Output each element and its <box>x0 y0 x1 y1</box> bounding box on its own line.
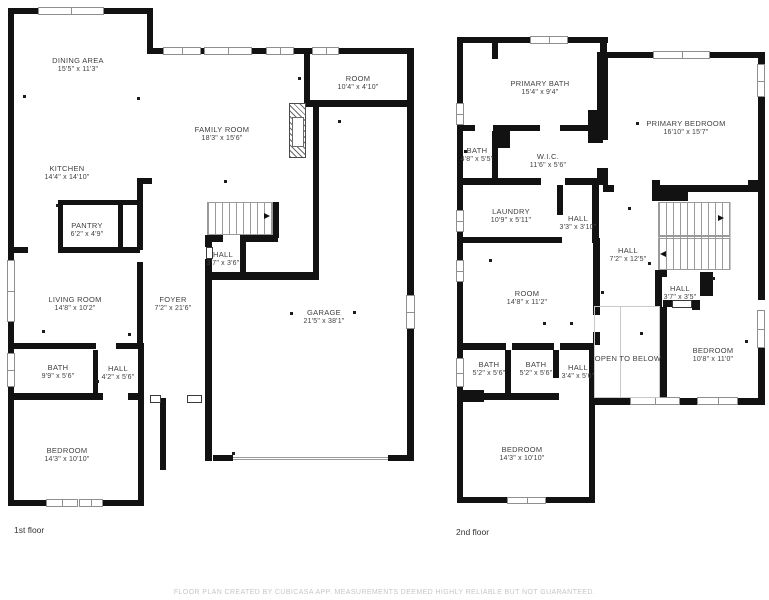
room-dims: 3'7" x 3'6" <box>207 259 240 268</box>
reference-dot <box>290 312 293 315</box>
window <box>38 7 104 15</box>
room-dims: 4'2" x 5'6" <box>102 373 135 382</box>
wall-segment <box>138 395 144 505</box>
room-name: PANTRY <box>71 221 104 230</box>
window-mullion <box>655 398 656 404</box>
room-name: PRIMARY BEDROOM <box>646 119 725 128</box>
wall-segment <box>313 103 319 275</box>
wall-segment <box>483 393 559 400</box>
wall-segment <box>505 350 511 394</box>
room-dims: 5'2" x 5'6" <box>473 369 506 378</box>
wall-segment <box>160 398 166 470</box>
window-mullion <box>228 48 229 54</box>
reference-dot <box>298 77 301 80</box>
room-name: FAMILY ROOM <box>195 125 250 134</box>
window <box>312 47 339 55</box>
room-label-bath3-2f: BATH 5'2" x 5'6" <box>473 360 506 378</box>
room-label-hall4-2f: HALL 3'4" x 5'6" <box>562 363 595 381</box>
room-name: HALL <box>610 246 647 255</box>
room-name: BEDROOM <box>44 446 89 455</box>
room-name: HALL <box>664 284 697 293</box>
window-mullion <box>718 398 719 404</box>
window-mullion <box>407 312 414 313</box>
window <box>530 36 568 44</box>
reference-dot <box>96 380 99 383</box>
wall-segment <box>758 190 765 300</box>
room-label-living-room: LIVING ROOM 14'8" x 10'2" <box>48 295 101 313</box>
reference-dot <box>224 180 227 183</box>
room-label-laundry: LAUNDRY 10'9" x 5'11" <box>491 207 531 225</box>
wall-segment <box>457 497 509 503</box>
wall-segment <box>58 200 142 205</box>
room-label-foyer: FOYER 7'2" x 21'6" <box>155 295 192 313</box>
wall-segment <box>492 131 510 148</box>
window <box>406 295 415 329</box>
room-dims: 4'8" x 5'5" <box>461 155 494 164</box>
floor-label-first: 1st floor <box>14 525 44 535</box>
room-dims: 6'2" x 4'9" <box>71 230 104 239</box>
window-mullion <box>8 370 14 371</box>
room-label-bath4-2f: BATH 5'2" x 5'6" <box>520 360 553 378</box>
room-name: ROOM <box>507 289 547 298</box>
room-name: LIVING ROOM <box>48 295 101 304</box>
wall-segment <box>680 398 697 405</box>
wall-segment <box>588 110 603 143</box>
room-name: DINING AREA <box>52 56 104 65</box>
window <box>757 310 765 348</box>
room-name: BATH <box>461 146 494 155</box>
window-mullion <box>280 48 281 54</box>
room-label-hall-small-2f: HALL 3'3" x 3'10" <box>560 214 597 232</box>
room-label-room-2f: ROOM 14'8" x 11'2" <box>507 289 547 307</box>
open-to-below-railing <box>620 306 622 398</box>
room-name: BEDROOM <box>499 445 544 454</box>
wall-segment <box>512 343 554 350</box>
room-label-bath-2f: BATH 4'8" x 5'5" <box>461 146 494 164</box>
window <box>456 103 464 125</box>
wall-segment <box>58 200 63 252</box>
room-dims: 14'8" x 11'2" <box>507 298 547 307</box>
window-mullion <box>682 52 683 58</box>
window <box>456 358 464 387</box>
room-name: ROOM <box>338 74 379 83</box>
wall-segment <box>205 272 319 280</box>
wall-segment <box>560 343 594 350</box>
reference-dot <box>648 262 651 265</box>
wall-segment <box>138 343 144 395</box>
room-label-dining-area: DINING AREA 15'5" x 11'3" <box>52 56 104 74</box>
reference-dot <box>489 259 492 262</box>
window-mullion <box>457 221 463 222</box>
wall-segment <box>240 235 278 242</box>
wall-segment <box>407 48 414 295</box>
wall-segment <box>93 350 98 395</box>
room-dims: 10'4" x 4'10" <box>338 83 379 92</box>
room-name: HALL <box>562 363 595 372</box>
window-mullion <box>457 373 463 374</box>
wall-segment <box>388 455 414 461</box>
room-label-hall-1f: HALL 3'7" x 3'6" <box>207 250 240 268</box>
window <box>266 47 294 55</box>
wall-segment <box>652 190 688 201</box>
room-dims: 9'9" x 5'6" <box>42 372 75 381</box>
wall-segment <box>457 125 463 210</box>
wall-segment <box>58 247 140 253</box>
wall-segment <box>553 350 559 378</box>
fireplace-firebox <box>292 117 304 147</box>
room-name: PRIMARY BATH <box>510 79 569 88</box>
wall-segment <box>758 97 765 192</box>
wall-segment <box>8 343 96 349</box>
wall-segment <box>8 500 48 506</box>
open-to-below-outline <box>594 306 660 398</box>
window <box>163 47 201 55</box>
wall-segment <box>700 272 713 296</box>
room-label-bedroom-1f: BEDROOM 14'3" x 10'10" <box>44 446 89 464</box>
window <box>456 210 464 232</box>
room-dims: 14'8" x 10'2" <box>48 304 101 313</box>
room-name: LAUNDRY <box>491 207 531 216</box>
reference-dot <box>232 452 235 455</box>
reference-dot <box>712 277 715 280</box>
door-opening <box>150 395 161 403</box>
room-dims: 7'2" x 12'5" <box>610 255 647 264</box>
room-dims: 15'5" x 11'3" <box>52 65 104 74</box>
room-dims: 3'7" x 3'5" <box>664 293 697 302</box>
room-name: HALL <box>560 214 597 223</box>
room-dims: 14'3" x 10'10" <box>499 454 544 463</box>
room-dims: 21'5" x 38'1" <box>304 317 345 326</box>
window <box>507 497 546 504</box>
room-dims: 7'2" x 21'6" <box>155 304 192 313</box>
window-mullion <box>71 8 72 14</box>
reference-dot <box>636 122 639 125</box>
window <box>757 64 765 97</box>
wall-segment <box>137 178 143 250</box>
wall-segment <box>8 387 14 506</box>
reference-dot <box>570 322 573 325</box>
reference-dot <box>628 207 631 210</box>
wall-segment <box>457 178 541 185</box>
wall-segment <box>546 497 595 503</box>
wall-segment <box>457 37 463 103</box>
room-dims: 10'8" x 11'0" <box>693 355 734 364</box>
room-dims: 5'2" x 5'6" <box>520 369 553 378</box>
wall-segment <box>205 235 212 247</box>
window <box>204 47 252 55</box>
disclaimer-text: FLOOR PLAN CREATED BY CUBICASA APP. MEAS… <box>0 589 769 596</box>
room-name: KITCHEN <box>44 164 89 173</box>
room-label-open-to-below: OPEN TO BELOW <box>595 354 662 363</box>
stair-landing-line <box>730 202 732 270</box>
reference-dot <box>601 291 604 294</box>
wall-segment <box>457 237 562 243</box>
room-name: BATH <box>42 363 75 372</box>
wall-segment <box>407 329 414 461</box>
reference-dot <box>23 95 26 98</box>
room-label-primary-bath: PRIMARY BATH 15'4" x 9'4" <box>510 79 569 97</box>
window-mullion <box>326 48 327 54</box>
reference-dot <box>137 97 140 100</box>
window-mullion <box>91 500 92 506</box>
stair-direction-arrow <box>718 215 724 221</box>
wall-segment <box>213 455 233 461</box>
wall-segment <box>710 52 765 58</box>
room-label-hall2-1f: HALL 4'2" x 5'6" <box>102 364 135 382</box>
room-name: BATH <box>520 360 553 369</box>
wall-segment <box>205 268 212 461</box>
window-mullion <box>62 500 63 506</box>
room-label-room-1f: ROOM 10'4" x 4'10" <box>338 74 379 92</box>
wall-segment <box>758 348 765 405</box>
room-dims: 14'3" x 10'10" <box>44 455 89 464</box>
window-mullion <box>457 271 463 272</box>
reference-dot <box>543 322 546 325</box>
floorplan-canvas: DINING AREA 15'5" x 11'3" KITCHEN 14'4" … <box>0 0 769 600</box>
room-dims: 10'9" x 5'11" <box>491 216 531 225</box>
room-name: HALL <box>207 250 240 259</box>
room-label-bedroom-bottom-2f: BEDROOM 14'3" x 10'10" <box>499 445 544 463</box>
wall-segment <box>655 270 662 307</box>
room-label-family-room: FAMILY ROOM 18'3" x 15'6" <box>195 125 250 143</box>
wall-segment <box>565 178 603 185</box>
wall-segment <box>137 262 143 343</box>
window-mullion <box>549 37 550 43</box>
garage-door-line <box>233 457 388 460</box>
room-dims: 18'3" x 15'6" <box>195 134 250 143</box>
stair-direction-arrow <box>264 213 270 219</box>
window <box>630 397 680 405</box>
window-mullion <box>8 291 14 292</box>
window-mullion <box>182 48 183 54</box>
room-name: BATH <box>473 360 506 369</box>
window <box>7 353 15 387</box>
reference-dot <box>745 340 748 343</box>
staircase-second-floor-lower <box>658 236 730 270</box>
wall-segment <box>240 242 246 272</box>
window-mullion <box>457 114 463 115</box>
wall-segment <box>603 185 614 192</box>
room-label-garage: GARAGE 21'5" x 38'1" <box>304 308 345 326</box>
wall-segment <box>118 200 123 252</box>
room-dims: 11'6" x 5'6" <box>530 161 566 170</box>
room-name: OPEN TO BELOW <box>595 354 662 363</box>
room-name: HALL <box>102 364 135 373</box>
floor-label-second: 2nd floor <box>456 527 489 537</box>
wall-segment <box>137 178 152 184</box>
room-dims: 16'10" x 15'7" <box>646 128 725 137</box>
wall-segment <box>557 185 563 215</box>
room-dims: 3'3" x 3'10" <box>560 223 597 232</box>
wall-segment <box>457 390 484 402</box>
room-dims: 14'4" x 14'10" <box>44 173 89 182</box>
wall-segment <box>273 202 279 238</box>
wall-segment <box>457 343 506 350</box>
wall-segment <box>593 238 600 315</box>
room-label-bedroom-right-2f: BEDROOM 10'8" x 11'0" <box>693 346 734 364</box>
room-label-wic: W.I.C. 11'6" x 5'6" <box>530 152 566 170</box>
window <box>79 499 103 507</box>
room-label-kitchen: KITCHEN 14'4" x 14'10" <box>44 164 89 182</box>
window <box>7 260 15 322</box>
wall-segment <box>593 398 630 405</box>
room-dims: 3'4" x 5'6" <box>562 372 595 381</box>
reference-dot <box>128 333 131 336</box>
room-name: BEDROOM <box>693 346 734 355</box>
door-opening <box>187 395 202 403</box>
wall-segment <box>8 247 28 253</box>
window-mullion <box>527 498 528 503</box>
room-name: W.I.C. <box>530 152 566 161</box>
wall-segment <box>660 307 667 398</box>
wall-segment <box>304 100 414 107</box>
wall-segment <box>8 8 14 260</box>
room-label-pantry: PANTRY 6'2" x 4'9" <box>71 221 104 239</box>
window <box>456 260 464 282</box>
window <box>697 397 738 405</box>
fireplace <box>289 103 306 158</box>
room-name: GARAGE <box>304 308 345 317</box>
wall-segment <box>457 387 463 503</box>
wall-segment <box>603 52 655 58</box>
window <box>46 499 78 507</box>
reference-dot <box>56 204 59 207</box>
wall-segment <box>457 125 475 131</box>
window-mullion <box>758 81 764 82</box>
room-dims: 15'4" x 9'4" <box>510 88 569 97</box>
room-label-primary-bedroom: PRIMARY BEDROOM 16'10" x 15'7" <box>646 119 725 137</box>
room-label-hall-main-2f: HALL 7'2" x 12'5" <box>610 246 647 264</box>
wall-segment <box>8 393 103 400</box>
window-mullion <box>758 329 764 330</box>
reference-dot <box>42 330 45 333</box>
window <box>653 51 710 59</box>
wall-segment <box>304 52 310 107</box>
wall-segment <box>492 37 498 59</box>
room-name: FOYER <box>155 295 192 304</box>
room-label-bath-1f: BATH 9'9" x 5'6" <box>42 363 75 381</box>
reference-dot <box>353 311 356 314</box>
reference-dot <box>338 120 341 123</box>
stair-direction-arrow <box>660 251 666 257</box>
room-label-hall3-2f: HALL 3'7" x 3'5" <box>664 284 697 302</box>
